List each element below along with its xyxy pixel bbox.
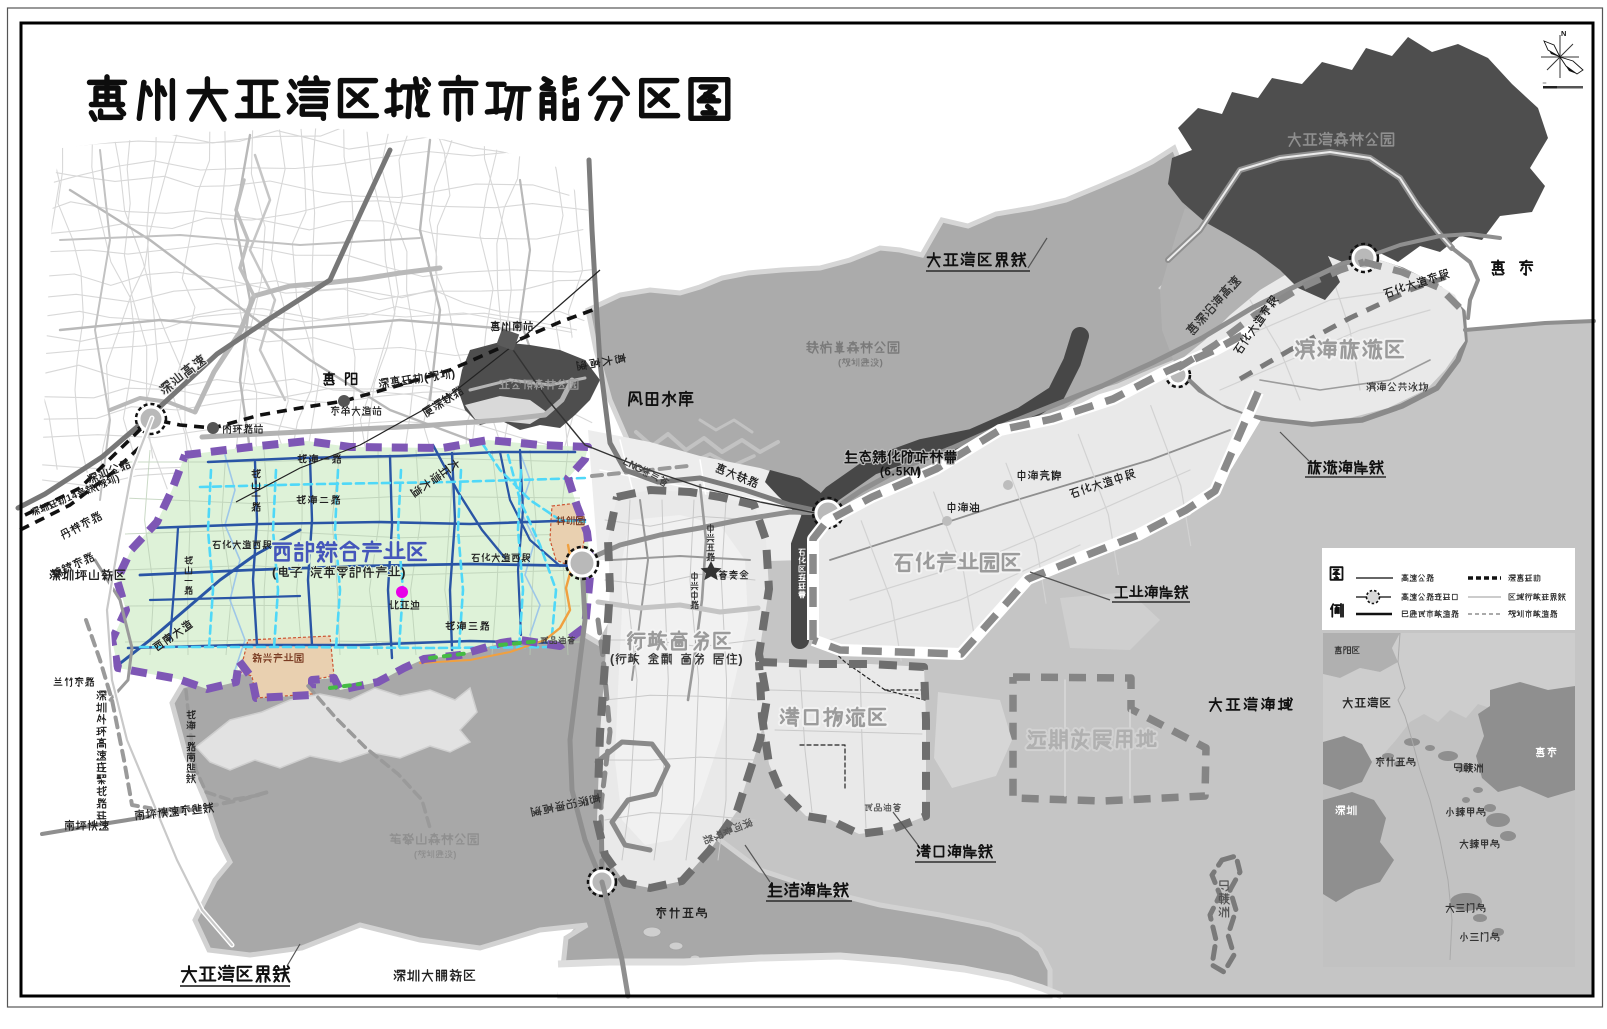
svg-text:): ) xyxy=(401,565,405,580)
svg-text:(: ( xyxy=(414,849,417,859)
svg-text:N: N xyxy=(1561,29,1566,38)
svg-text:.: . xyxy=(892,466,895,479)
svg-text:): ) xyxy=(453,849,456,859)
svg-text:): ) xyxy=(738,652,742,666)
svg-text:): ) xyxy=(880,358,883,369)
svg-text:5: 5 xyxy=(896,466,903,479)
svg-text:(: ( xyxy=(272,565,277,580)
svg-text:6: 6 xyxy=(884,466,891,479)
svg-text:(: ( xyxy=(880,466,884,479)
svg-text:): ) xyxy=(917,466,921,479)
